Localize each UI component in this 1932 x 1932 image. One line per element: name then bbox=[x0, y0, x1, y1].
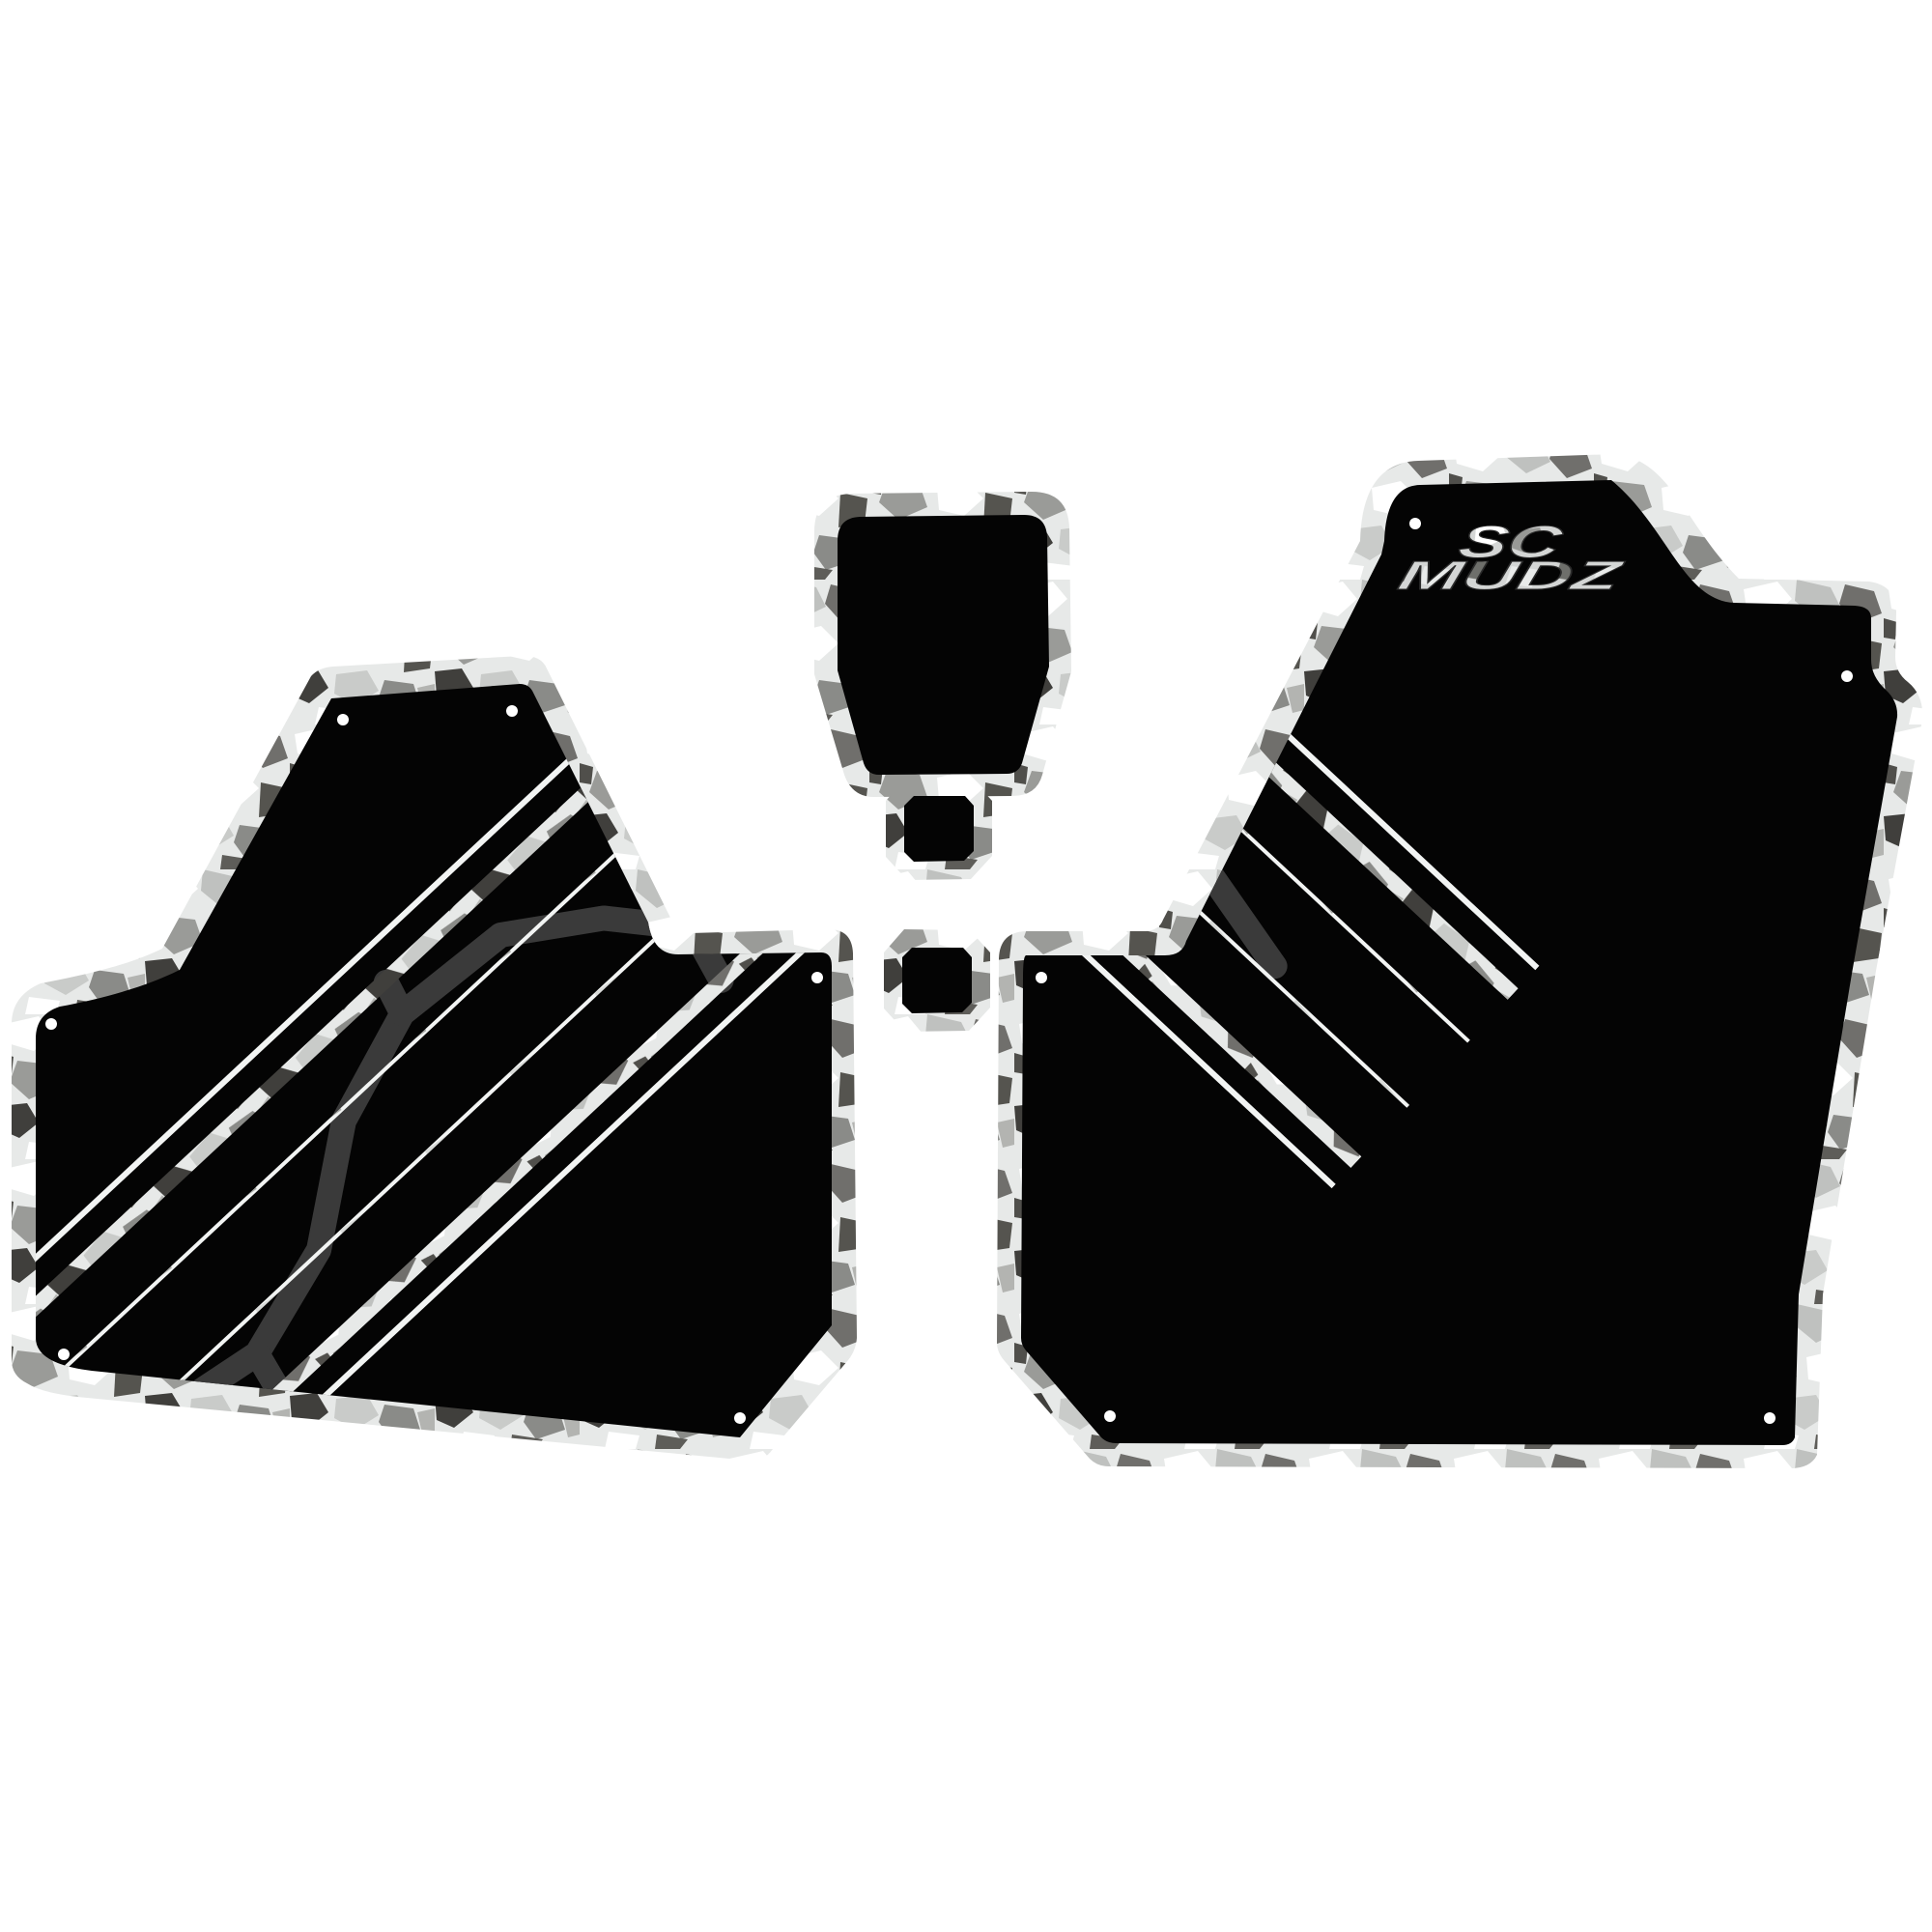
rivet-hole bbox=[1764, 1412, 1776, 1424]
center-pod-decal bbox=[814, 492, 1071, 797]
center-pod-black-face bbox=[838, 515, 1049, 775]
rivet-hole bbox=[1841, 670, 1853, 682]
rivet-hole bbox=[1036, 972, 1047, 983]
rivet-hole bbox=[506, 705, 518, 717]
product-image: SC MUDZ bbox=[0, 0, 1932, 1932]
octagon-top-black-face bbox=[904, 796, 974, 862]
octagon-grommet-top bbox=[886, 778, 992, 880]
decal-kit-graphic: SC MUDZ bbox=[0, 0, 1932, 1932]
octagon-bottom-black-face bbox=[902, 948, 972, 1013]
rivet-hole bbox=[811, 972, 823, 983]
rivet-hole bbox=[58, 1349, 70, 1360]
logo-line2: MUDZ bbox=[1394, 553, 1629, 598]
rivet-hole bbox=[1409, 518, 1421, 529]
rivet-hole bbox=[1104, 1410, 1116, 1422]
rivet-hole bbox=[337, 714, 349, 725]
octagon-grommet-bottom bbox=[884, 929, 990, 1032]
rivet-hole bbox=[45, 1018, 57, 1030]
rivet-hole bbox=[734, 1412, 746, 1424]
